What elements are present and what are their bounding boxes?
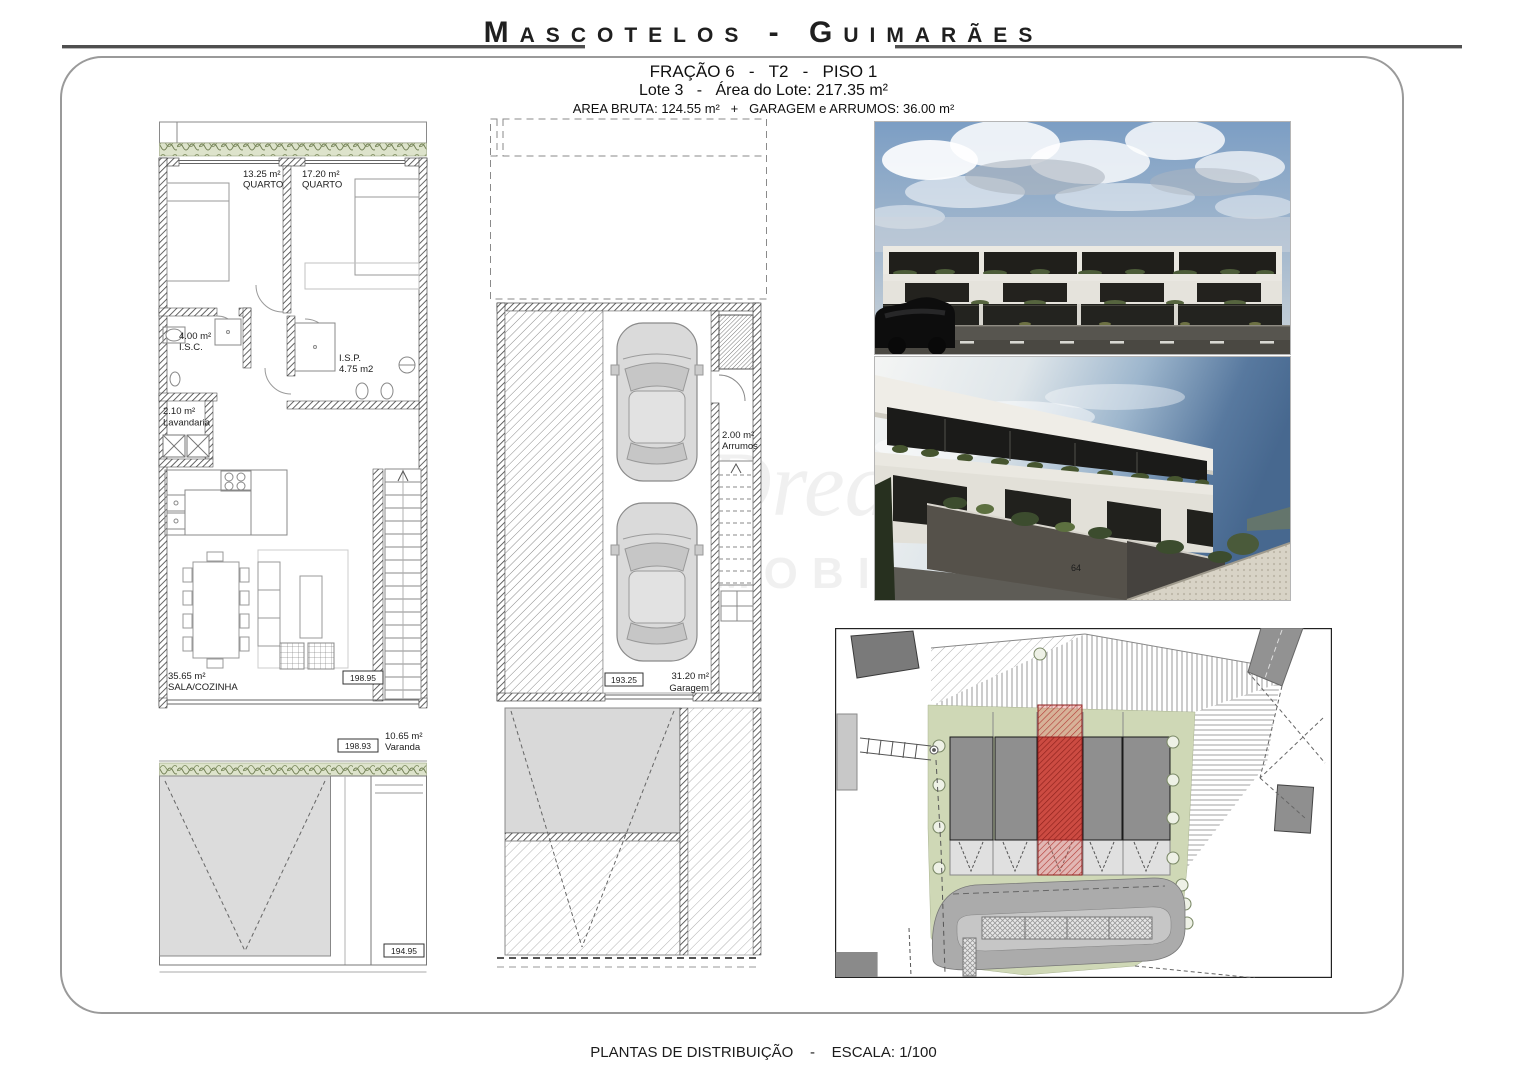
level-marker: 198.95 (343, 671, 383, 684)
upper-balcony-outline (160, 122, 427, 143)
laundry-appliances (163, 435, 209, 457)
room-label-area: 31.20 m² (672, 671, 710, 682)
bed (167, 183, 229, 281)
existing-building (836, 952, 878, 977)
door-arc (719, 375, 745, 401)
title-rule-left (62, 45, 585, 49)
planter-strip-bottom (160, 763, 427, 776)
svg-text:198.93: 198.93 (345, 741, 371, 751)
level-marker: 193.25 (605, 673, 643, 686)
room-label-name: Garagem (669, 683, 709, 694)
driveway-ramp (497, 708, 761, 967)
room-label-area: 13.25 m² (243, 169, 281, 180)
room-label-name: QUARTO (243, 180, 283, 191)
svg-text:194.95: 194.95 (391, 946, 417, 956)
photo-perspective: 64 (875, 357, 1290, 600)
side-ramp-hatch (505, 311, 603, 693)
garage-floor-plan: 2.00 m² Arrumos 193.25 31.20 m² Garagem (487, 113, 770, 975)
room-label-name: Varanda (385, 742, 421, 753)
tree (1034, 648, 1046, 660)
utility-post (963, 938, 976, 976)
driveway-ramp (160, 776, 427, 972)
shaft-hatch (719, 315, 753, 369)
rug (280, 643, 304, 669)
room-label-name: I.S.P. (339, 353, 361, 364)
car (611, 323, 703, 481)
level-marker: 194.95 (384, 944, 424, 957)
photo-front-elevation (875, 122, 1290, 354)
car (611, 503, 703, 661)
bed (355, 179, 419, 275)
staircase (719, 461, 753, 621)
room-label-area: 4.00 m² (179, 331, 211, 342)
sofa (258, 562, 322, 646)
sheet-caption: PLANTAS DE DISTRIBUIÇÃO - ESCALA: 1/100 (0, 1044, 1527, 1061)
room-label-area: 4.75 m2 (339, 364, 373, 375)
dining-table (183, 552, 249, 668)
room-label-name: QUARTO (302, 180, 342, 191)
rug (308, 643, 334, 669)
svg-text:198.95: 198.95 (350, 673, 376, 683)
room-label-area: 2.10 m² (163, 406, 195, 417)
room-label-area: 35.65 m² (168, 671, 206, 682)
upper-floor-outline (491, 119, 767, 299)
room-label-name: I.S.C. (179, 342, 203, 353)
garage-door (605, 695, 693, 699)
title-rule-right (895, 45, 1462, 49)
existing-building (1274, 785, 1313, 833)
room-label-name: SALA/COZINHA (168, 682, 238, 693)
room-label-area: 17.20 m² (302, 169, 340, 180)
room-label-area: 10.65 m² (385, 731, 423, 742)
kitchen-counter (165, 470, 287, 535)
apartment-floor-plan: 13.25 m² QUARTO 17.20 m² QUARTO 4.00 m² … (155, 113, 455, 985)
svg-text:193.25: 193.25 (611, 675, 637, 685)
staircase (385, 469, 421, 699)
site-plan (835, 628, 1332, 978)
lot-highlight (1038, 705, 1082, 875)
level-marker: 198.93 (338, 739, 378, 752)
room-label-name: Lavandaria (163, 418, 211, 429)
room-label-name: Arrumos (722, 441, 758, 452)
existing-structure (837, 714, 857, 790)
room-label-area: 2.00 m² (722, 430, 754, 441)
house-number: 64 (1071, 563, 1081, 573)
planter-strip-top (160, 143, 427, 156)
